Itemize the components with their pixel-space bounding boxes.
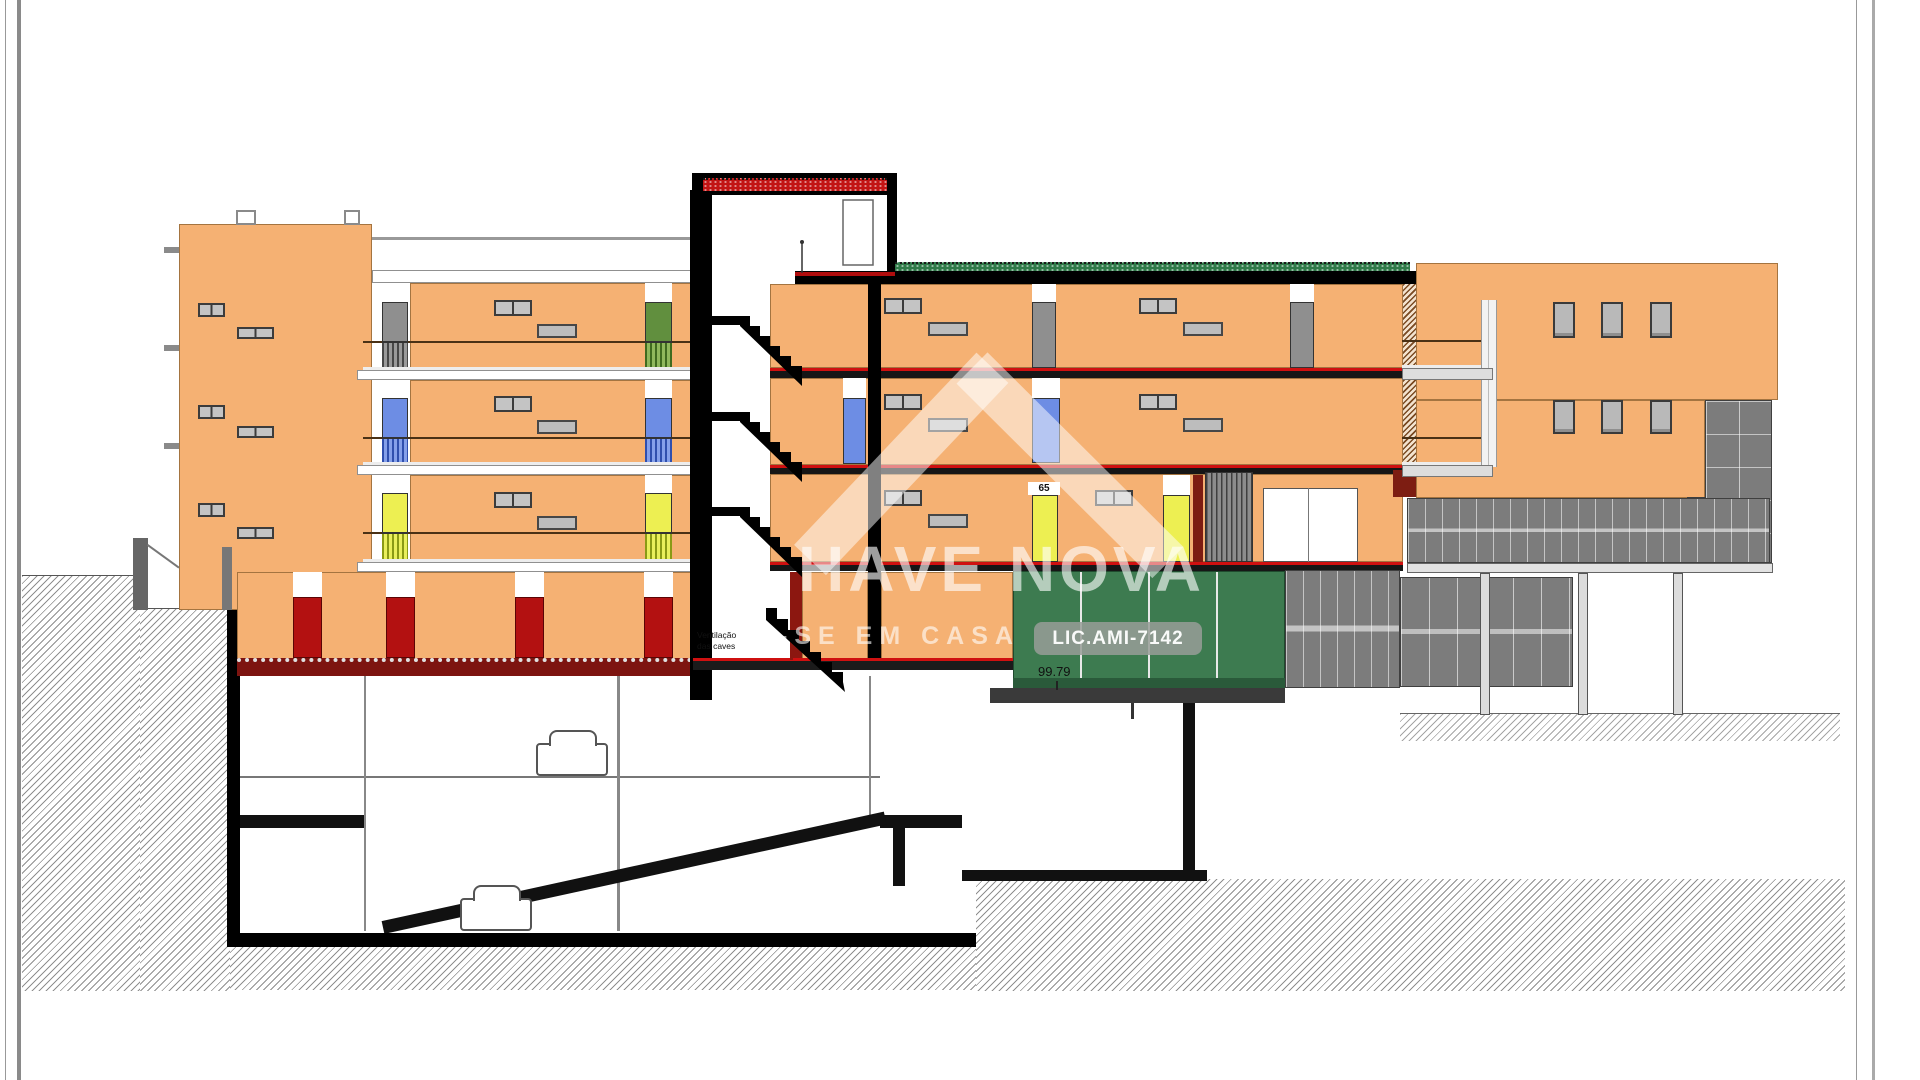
door-recess bbox=[1163, 475, 1190, 495]
door-recess bbox=[1032, 378, 1060, 398]
window-pair bbox=[198, 405, 225, 419]
basement-right-room-floor bbox=[962, 870, 1207, 881]
stair-flight bbox=[740, 507, 802, 577]
earth-hatch-left-bank-lower bbox=[140, 608, 230, 991]
basement-column bbox=[617, 676, 620, 931]
garage-door-red bbox=[644, 597, 673, 658]
garage-door-recess bbox=[644, 572, 673, 597]
basement-right-room-wall bbox=[1183, 703, 1195, 881]
vent-window bbox=[928, 418, 968, 432]
window-pair bbox=[494, 396, 532, 412]
garage-door-recess bbox=[515, 572, 544, 597]
parking-slab-left bbox=[240, 815, 364, 828]
window bbox=[1553, 302, 1575, 338]
window-pair bbox=[237, 327, 274, 339]
balcony-slab bbox=[1402, 465, 1493, 477]
window-sill bbox=[164, 443, 179, 449]
interior-door-yellow bbox=[1032, 495, 1058, 562]
car-cabin bbox=[473, 885, 521, 901]
ventilation-label-line1: Ventilação bbox=[697, 630, 743, 641]
interior-door-blue bbox=[1032, 398, 1060, 463]
earth-hatch-bottom-right bbox=[976, 879, 1845, 991]
door-recess bbox=[645, 380, 672, 398]
car-outline bbox=[460, 898, 532, 931]
window bbox=[1650, 302, 1672, 338]
railing-section-green bbox=[645, 341, 672, 370]
vent-window bbox=[1183, 322, 1223, 336]
window-pair bbox=[198, 503, 225, 517]
stair-landing bbox=[712, 412, 740, 421]
window-pair bbox=[1095, 490, 1133, 506]
garage-curtain-wall bbox=[1285, 570, 1400, 688]
balcony-railing bbox=[363, 437, 692, 465]
interior-door-yellow bbox=[1163, 495, 1190, 562]
door-recess bbox=[645, 475, 672, 493]
chimney bbox=[344, 210, 360, 225]
ventilation-grille bbox=[1205, 472, 1253, 562]
vent-window bbox=[537, 324, 577, 338]
page-border-left-inner bbox=[17, 0, 21, 1080]
site-post bbox=[133, 538, 148, 610]
window-pair bbox=[1139, 394, 1177, 410]
window-pair bbox=[237, 426, 274, 438]
window bbox=[1601, 302, 1623, 338]
page-border-right-outer bbox=[1872, 0, 1875, 1080]
basement-room-right bbox=[976, 703, 1186, 870]
site-guy-line bbox=[147, 544, 180, 569]
vent-window bbox=[928, 514, 968, 528]
cut-wall-red bbox=[1193, 475, 1203, 562]
parapet-line bbox=[372, 237, 690, 240]
basement-floor-slab bbox=[227, 933, 976, 947]
retaining-post bbox=[222, 547, 232, 610]
window-sill bbox=[164, 345, 179, 351]
ground-hatch-far-right bbox=[1400, 713, 1840, 741]
parking-slab-right bbox=[880, 815, 962, 828]
elevation-marker bbox=[1056, 681, 1058, 690]
parking-deck-line bbox=[240, 776, 880, 778]
window-pair bbox=[494, 300, 532, 316]
balcony-slab bbox=[1402, 368, 1493, 380]
window bbox=[1553, 400, 1575, 434]
garage-door-recess bbox=[386, 572, 415, 597]
left-building-roof-band bbox=[372, 270, 692, 283]
railing-section-blue bbox=[645, 437, 672, 465]
garage-door-red bbox=[515, 597, 544, 658]
window-pair bbox=[1139, 298, 1177, 314]
balcony-railing bbox=[1402, 437, 1481, 465]
railing-section-yellow bbox=[382, 532, 408, 562]
page-border-left-outer bbox=[5, 0, 6, 1080]
window-pair bbox=[237, 527, 274, 539]
corner-mullion bbox=[1481, 300, 1497, 467]
balcony-slab bbox=[357, 465, 695, 475]
earth-hatch-left-bank bbox=[22, 575, 140, 991]
pilotis-column bbox=[1578, 573, 1588, 715]
door-recess bbox=[645, 283, 672, 302]
upper-curtain-band bbox=[1407, 498, 1770, 563]
door-recess bbox=[382, 475, 408, 493]
railing-section-blue bbox=[382, 437, 408, 465]
ramp-support-wall bbox=[893, 828, 905, 886]
open-void bbox=[1263, 488, 1358, 562]
deck-slab bbox=[1407, 563, 1773, 573]
stair-flight bbox=[740, 316, 802, 386]
door-recess bbox=[382, 283, 408, 302]
interior-door-gray bbox=[1290, 302, 1314, 368]
car-outline bbox=[536, 743, 608, 776]
ventilation-label: Ventilação das caves bbox=[697, 630, 743, 651]
stair-landing bbox=[712, 507, 740, 516]
interior-door-gray bbox=[1032, 302, 1056, 368]
pilotis-column bbox=[1673, 573, 1683, 715]
vent-window bbox=[928, 322, 968, 336]
pilotis-column bbox=[1480, 573, 1490, 715]
railing-section-yellow bbox=[645, 532, 672, 562]
railing-section-gray bbox=[382, 341, 408, 370]
stair-landing bbox=[712, 316, 740, 325]
garage-door-recess bbox=[293, 572, 322, 597]
garage-doors-base bbox=[1013, 678, 1285, 688]
ventilation-label-line2: das caves bbox=[697, 641, 743, 652]
chimney bbox=[236, 210, 256, 225]
unit-number-label: 65 bbox=[1038, 483, 1049, 494]
elevation-drawing-canvas: 65 99.79 Ventilação das caves bbox=[0, 0, 1920, 1080]
void-divider bbox=[1308, 488, 1309, 562]
elevator-shaft-outline bbox=[843, 200, 873, 265]
balcony-railing bbox=[1402, 340, 1481, 368]
antenna-tip bbox=[800, 240, 804, 244]
balcony-railing bbox=[363, 341, 692, 370]
earth-hatch-bottom-left bbox=[230, 945, 976, 990]
window bbox=[1601, 400, 1623, 434]
unit-number-patch: 65 bbox=[1028, 482, 1060, 495]
vent-window bbox=[1183, 418, 1223, 432]
green-roof-strip bbox=[895, 262, 1410, 271]
window-sill bbox=[164, 247, 179, 253]
garage-door-red bbox=[293, 597, 322, 658]
balcony-slab bbox=[357, 562, 695, 572]
vent-window bbox=[537, 516, 577, 530]
window bbox=[1650, 400, 1672, 434]
elevation-label: 99.79 bbox=[1038, 664, 1071, 679]
window-pair bbox=[198, 303, 225, 317]
door-recess bbox=[1290, 284, 1314, 302]
garage-door-red bbox=[386, 597, 415, 658]
car-cabin bbox=[549, 730, 597, 746]
window-pair bbox=[494, 492, 532, 508]
stair-flight bbox=[766, 608, 845, 692]
basement-column bbox=[364, 676, 366, 931]
balcony-slab bbox=[357, 370, 695, 380]
page-border-right-inner bbox=[1856, 0, 1857, 1080]
ground-floor-slab bbox=[237, 658, 692, 676]
door-recess bbox=[382, 380, 408, 398]
vent-window bbox=[537, 420, 577, 434]
door-recess bbox=[1032, 284, 1056, 302]
stair-flight bbox=[740, 412, 802, 482]
garage-base-slab bbox=[990, 688, 1285, 703]
